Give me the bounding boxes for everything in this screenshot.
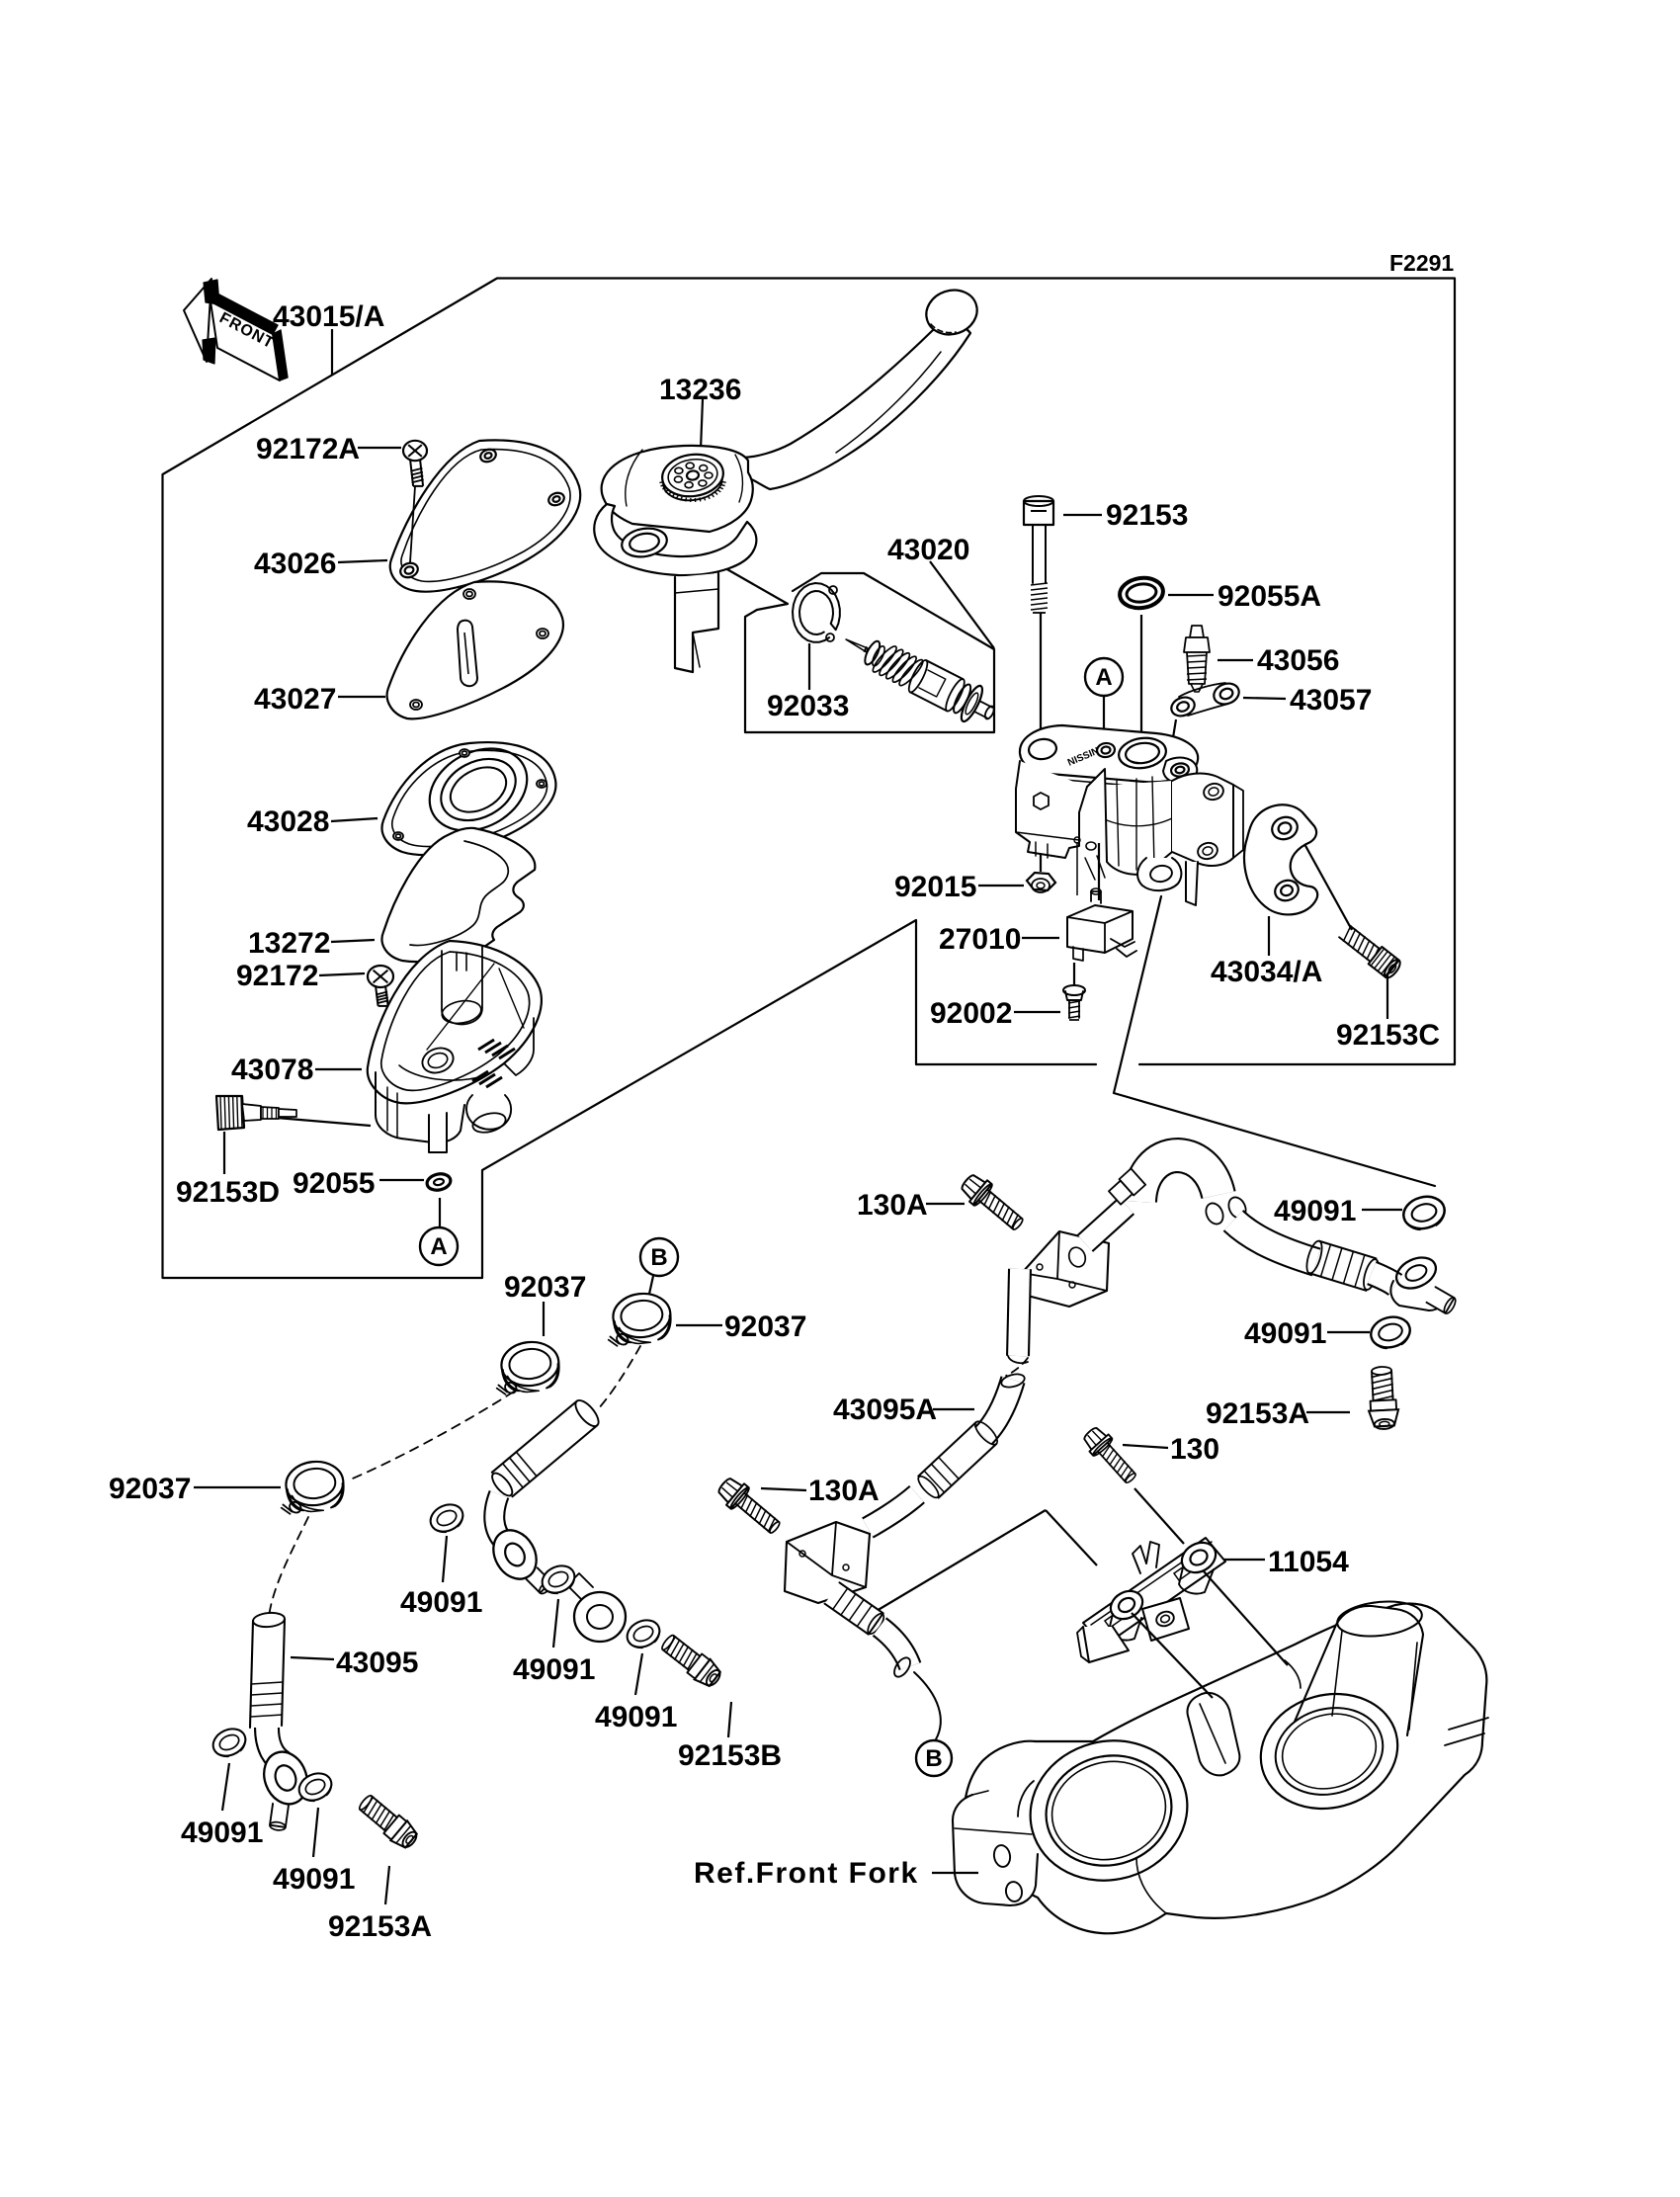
svg-text:B: B [650,1244,667,1271]
svg-text:49091: 49091 [273,1863,355,1896]
svg-text:92037: 92037 [504,1271,586,1304]
svg-text:92002: 92002 [930,997,1012,1030]
svg-text:92055: 92055 [293,1167,375,1200]
svg-text:43026: 43026 [254,548,336,580]
svg-text:43095A: 43095A [833,1394,937,1426]
svg-text:43056: 43056 [1257,644,1339,677]
svg-text:B: B [925,1745,942,1772]
svg-text:49091: 49091 [1274,1195,1356,1227]
svg-text:13272: 13272 [248,927,330,960]
svg-text:92153A: 92153A [328,1910,432,1943]
svg-text:43057: 43057 [1290,684,1372,717]
svg-text:92172: 92172 [236,960,318,992]
svg-text:49091: 49091 [1244,1317,1326,1350]
svg-text:92153: 92153 [1106,499,1188,532]
svg-text:92033: 92033 [767,690,849,722]
svg-text:A: A [430,1233,447,1260]
svg-text:92015: 92015 [894,871,976,903]
svg-text:92153C: 92153C [1336,1019,1440,1052]
svg-text:43028: 43028 [247,805,329,838]
svg-text:43095: 43095 [336,1647,418,1679]
svg-text:49091: 49091 [181,1817,263,1849]
svg-text:43020: 43020 [887,534,969,566]
svg-text:130A: 130A [857,1189,928,1222]
svg-text:92153D: 92153D [176,1176,280,1209]
svg-text:92153A: 92153A [1206,1397,1309,1430]
svg-text:43078: 43078 [231,1054,313,1086]
svg-text:92172A: 92172A [256,433,360,465]
svg-text:43034/A: 43034/A [1211,956,1322,988]
svg-text:F2291: F2291 [1389,250,1454,276]
svg-text:92153B: 92153B [678,1739,782,1772]
svg-text:43027: 43027 [254,683,336,716]
svg-text:49091: 49091 [400,1586,482,1619]
svg-text:49091: 49091 [513,1653,595,1686]
svg-text:130A: 130A [808,1475,880,1507]
svg-text:92037: 92037 [724,1310,806,1343]
svg-text:49091: 49091 [595,1701,677,1733]
svg-text:13236: 13236 [659,374,741,406]
svg-text:27010: 27010 [939,923,1021,956]
svg-text:92037: 92037 [109,1473,191,1505]
svg-text:A: A [1095,664,1112,691]
svg-text:Ref.Front Fork: Ref.Front Fork [694,1857,919,1890]
svg-text:43015/A: 43015/A [273,300,384,333]
svg-text:11054: 11054 [1268,1546,1349,1578]
svg-text:92055A: 92055A [1218,580,1321,613]
svg-text:130: 130 [1170,1433,1219,1466]
